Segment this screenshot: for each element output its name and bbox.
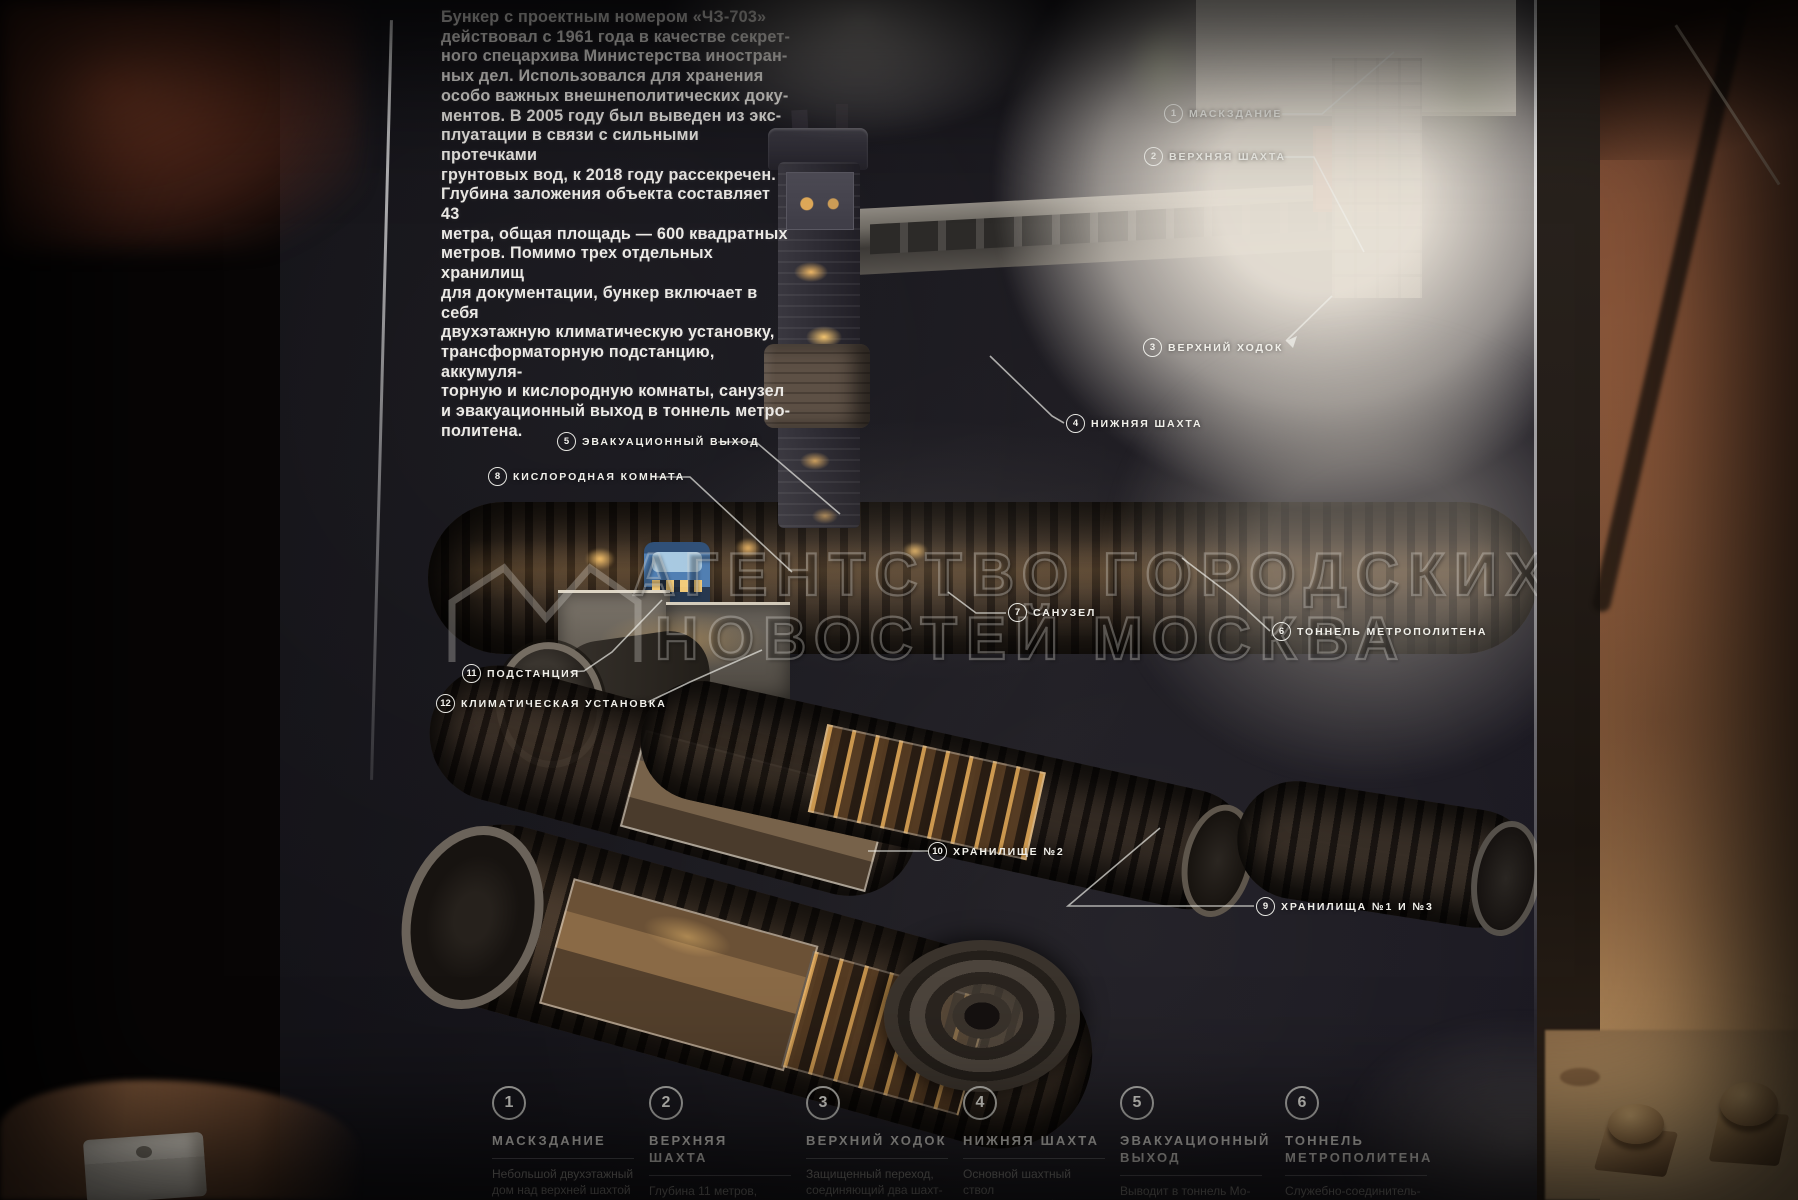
callout-number: 8 — [488, 467, 507, 486]
callout-number: 3 — [1143, 338, 1162, 357]
leader-metro-tunnel — [1182, 558, 1270, 631]
callout-label: ВЕРХНИЙ ХОДОК — [1168, 342, 1283, 354]
callout-number: 12 — [436, 694, 455, 713]
callout-number: 2 — [1144, 147, 1163, 166]
callout-number: 7 — [1008, 603, 1027, 622]
callout-storage-2: 10 ХРАНИЛИЩЕ №2 — [928, 842, 1065, 861]
ceramic-box — [83, 1132, 207, 1200]
leader-upper-gallery — [1286, 296, 1332, 341]
callout-number: 9 — [1256, 897, 1275, 916]
callout-upper-shaft: 2 ВЕРХНЯЯ ШАХТА — [1144, 147, 1286, 166]
photo-of-bunker-poster: АГЕНТСТВО ГОРОДСКИХ НОВОСТЕЙ МОСКВА Бунк… — [0, 0, 1798, 1200]
callout-label: САНУЗЕЛ — [1033, 607, 1096, 619]
callout-number: 4 — [1066, 414, 1085, 433]
callout-label: КИСЛОРОДНАЯ КОМНАТА — [513, 471, 685, 483]
leader-evac-exit — [718, 442, 840, 514]
callout-label: ВЕРХНЯЯ ШАХТА — [1169, 151, 1286, 163]
ceramic-box-knob — [136, 1146, 152, 1158]
callout-label: ТОННЕЛЬ МЕТРОПОЛИТЕНА — [1297, 626, 1487, 638]
callout-number: 6 — [1272, 622, 1291, 641]
callout-upper-gallery: 3 ВЕРХНИЙ ХОДОК — [1143, 338, 1283, 357]
callout-number: 5 — [557, 432, 576, 451]
leader-lower-shaft — [990, 356, 1064, 423]
leader-storages-1-3 — [1068, 828, 1254, 906]
callout-label: ХРАНИЛИЩЕ №2 — [953, 846, 1065, 858]
callout-label: МАСКЗДАНИЕ — [1189, 108, 1282, 120]
leader-maskhouse — [1282, 52, 1394, 114]
callout-lower-shaft: 4 НИЖНЯЯ ШАХТА — [1066, 414, 1203, 433]
callout-climate-unit: 12 КЛИМАТИЧЕСКАЯ УСТАНОВКА — [436, 694, 667, 713]
callout-label: ПОДСТАНЦИЯ — [487, 668, 580, 680]
callout-evac-exit: 5 ЭВАКУАЦИОННЫЙ ВЫХОД — [557, 432, 760, 451]
callout-number: 10 — [928, 842, 947, 861]
bolt-cap — [1608, 1104, 1664, 1144]
rubble — [1560, 1068, 1600, 1086]
callout-label: НИЖНЯЯ ШАХТА — [1091, 418, 1203, 430]
callout-substation: 11 ПОДСТАНЦИЯ — [462, 664, 580, 683]
callout-label: ЭВАКУАЦИОННЫЙ ВЫХОД — [582, 436, 760, 448]
leader-arrowhead — [1286, 336, 1297, 348]
rust-wall-top-left — [0, 0, 360, 250]
bolt-cap — [1720, 1082, 1778, 1126]
callout-maskhouse: 1 МАСКЗДАНИЕ — [1164, 104, 1282, 123]
leader-upper-shaft — [1276, 157, 1364, 252]
leader-wc — [948, 592, 1006, 613]
callout-number: 1 — [1164, 104, 1183, 123]
callout-number: 11 — [462, 664, 481, 683]
callout-wc: 7 САНУЗЕЛ — [1008, 603, 1096, 622]
rust-dark-top-corner — [1600, 0, 1798, 160]
callout-label: КЛИМАТИЧЕСКАЯ УСТАНОВКА — [461, 698, 667, 710]
callout-metro-tunnel: 6 ТОННЕЛЬ МЕТРОПОЛИТЕНА — [1272, 622, 1487, 641]
leader-oxygen-room — [652, 477, 792, 572]
callout-storages-1-3: 9 ХРАНИЛИЩА №1 И №3 — [1256, 897, 1434, 916]
leader-substation — [570, 600, 662, 672]
callout-oxygen-room: 8 КИСЛОРОДНАЯ КОМНАТА — [488, 467, 685, 486]
callout-label: ХРАНИЛИЩА №1 И №3 — [1281, 901, 1434, 913]
